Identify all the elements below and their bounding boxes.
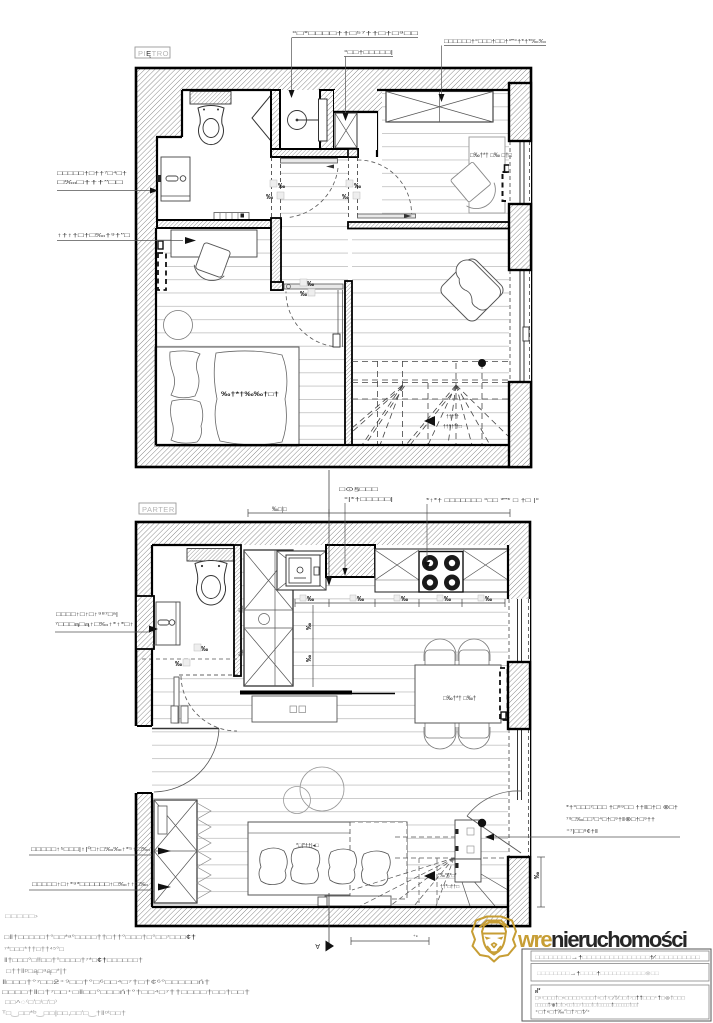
svg-text:A: A bbox=[315, 942, 320, 949]
svg-text:□□˄◌⁽□′□⁽□′□⁾: □□˄◌⁽□′□⁽□′□⁾ bbox=[5, 999, 58, 1006]
svg-text:°|*†□□□□□|: °|*†□□□□□| bbox=[344, 497, 393, 503]
svg-text:PIĘTRO: PIĘTRO bbox=[138, 49, 169, 58]
svg-text:††††*†□: ††††*†□ bbox=[443, 424, 462, 430]
svg-text:‰: ‰ bbox=[238, 649, 245, 656]
svg-text:*†°□□□⁷□□□ †□⁸⁹□□ ††‖□†□ ⊗□†: *†°□□□⁷□□□ †□⁸⁹□□ ††‖□†□ ⊗□† bbox=[566, 804, 678, 811]
svg-text:‖□□□†°⁷□□ƻ⁺⁹□□†°□⁶□□⁴□⁷†□†¢⁶°□: ‖□□□†°⁷□□ƻ⁺⁹□□†°□⁶□□⁴□⁷†□†¢⁶°□□□□□ń† bbox=[2, 979, 210, 986]
svg-text:‰: ‰ bbox=[357, 596, 364, 603]
svg-text:‰□|□: ‰□|□ bbox=[272, 507, 287, 513]
svg-text:□□□□□↑⁵□□□|↑|⁰□↑□‰‰↑*⁵↑□‰: □□□□□↑⁵□□□|↑|⁰□↑□‰‰↑*⁵↑□‰ bbox=[31, 846, 150, 853]
svg-text:‰: ‰ bbox=[307, 281, 314, 288]
svg-text:□□□□†‖□†⁷□□⁺□‖□□°□□□ń†°†□□⁴□⁷†: □□□□†‖□†⁷□□⁺□‖□□°□□□ń†°†□□⁴□⁷††□□□□†□□†□… bbox=[2, 989, 250, 996]
svg-text:□⊙§□□□: □⊙§□□□ bbox=[339, 487, 379, 493]
svg-text:□□□□□□□□→†□□□□†□□□□□□□□□□□⊗□□: □□□□□□□□→†□□□□†□□□□□□□□□□□⊗□□ bbox=[537, 971, 660, 977]
svg-text:*↑*† □□□□□□□ °□□ *‴* □ †□ |°: *↑*† □□□□□□□ °□□ *‴* □ †□ |° bbox=[426, 498, 539, 504]
svg-text:□□□□□›: □□□□□› bbox=[5, 914, 38, 920]
svg-text:↑†↑†□†□‰†⁹†″□: ↑†↑†□†□‰†⁹†″□ bbox=[57, 232, 131, 239]
svg-text:‰: ‰ bbox=[342, 194, 349, 201]
svg-text:*□|*††|◂□: *□|*††|◂□ bbox=[296, 843, 319, 849]
svg-text:‰: ‰ bbox=[278, 183, 285, 190]
svg-text:⁷⁹□‰□□⁷□⁴□†□⁹†‖⊗□†□⁹††: ⁷⁹□‰□□⁷□⁴□†□⁹†‖⊗□†□⁹†† bbox=[566, 816, 655, 823]
svg-text:‰: ‰ bbox=[307, 596, 314, 603]
svg-text:‰: ‰ bbox=[306, 655, 313, 662]
svg-text:⁷□□□ą□ą↑□‰↑*↑*□↑: ⁷□□□ą□ą↑□‰↑*↑*□↑ bbox=[55, 621, 134, 628]
svg-text:⁺□†⁶□†‰″□†⁷□†⁄⁺: ⁺□†⁶□†‰″□†⁷□†⁄⁺ bbox=[535, 1010, 590, 1016]
svg-text:‰†*†‰‰†□†: ‰†*†‰‰†□† bbox=[221, 392, 279, 398]
svg-text:⁺⁷|□□⁹¢†‖: ⁺⁷|□□⁹¢†‖ bbox=[566, 828, 598, 835]
svg-text:□□□□↑□↑□↑⁹⁸⁷□ᵃ|: □□□□↑□↑□↑⁹⁸⁷□ᵃ| bbox=[56, 611, 118, 618]
svg-text:□□□□□□□□→†□□□□□□□□□□□□□□□†⁄□□□: □□□□□□□□→†□□□□□□□□□□□□□□□†⁄□□□□□□□□□□ bbox=[535, 955, 701, 961]
svg-text:‰: ‰ bbox=[175, 661, 182, 668]
svg-text:‰: ‰ bbox=[485, 596, 492, 603]
svg-text:□□□□□↑□↑*⁹*□□□□□□↑□‰↑↑□‰: □□□□□↑□↑*⁹*□□□□□□↑□‰↑↑□‰ bbox=[32, 881, 148, 888]
svg-text:ᵀ□‿□□*ᵇ‿□□|□□,□□′□‿†‖ᵒᵗ□□†: ᵀ□‿□□*ᵇ‿□□|□□,□□′□‿†‖ᵒᵗ□□† bbox=[2, 1010, 126, 1017]
svg-text:□‰†*† □‰†: □‰†*† □‰† bbox=[443, 696, 476, 702]
svg-text:‰: ‰ bbox=[306, 623, 313, 630]
svg-text:wrenieruchomości: wrenieruchomości bbox=[517, 927, 688, 952]
svg-text:‰: ‰ bbox=[354, 183, 361, 190]
svg-text:‰: ‰ bbox=[534, 872, 541, 879]
svg-text:‰: ‰ bbox=[401, 596, 408, 603]
svg-text:°□*□□□□††□⁵⁷††□†□⁹□□: °□*□□□□††□⁵⁷††□†□⁹□□ bbox=[292, 30, 419, 37]
svg-text:PARTER: PARTER bbox=[142, 505, 175, 514]
svg-text:‰: ‰ bbox=[300, 291, 307, 298]
svg-text:‖†□□□°□‼□□†°□□□□†⁷*□¢†□□□□□□†: ‖†□□□°□‼□□†°□□□□†⁷*□¢†□□□□□□† bbox=[4, 957, 143, 964]
svg-text:‰: ‰ bbox=[201, 646, 208, 653]
svg-text:††*□††□: ††*□††□ bbox=[440, 884, 459, 890]
svg-text:⁷*□□□*††□††⁴⁵°□: ⁷*□□□*††□††⁴⁵°□ bbox=[4, 946, 64, 953]
svg-text:□⁵⁷□□□†□⁶□□□□⁷□□□†⁵□†⁷□⁄†⁄□□†⁷: □⁵⁷□□□†□⁶□□□□⁷□□□†⁵□†⁷□⁄†⁄□□†⁷□††□□□⁺†□⊗… bbox=[535, 996, 685, 1002]
svg-text:ᵦ|*: ᵦ|* bbox=[535, 988, 540, 994]
svg-text:⁺⁹: ⁺⁹ bbox=[413, 934, 418, 940]
svg-text:□□□□□□†°□□□†□□†°‴°†*†*‰‰: □□□□□□†°□□□†□□†°‴°†*†*‰‰ bbox=[444, 39, 546, 45]
svg-text:‰: ‰ bbox=[444, 596, 451, 603]
svg-text:□‰†*† □‰ □†□: □‰†*† □‰ □†□ bbox=[470, 153, 513, 159]
svg-text:□‰□†††″□□: □‰□†††″□□ bbox=[57, 180, 124, 186]
svg-text:□††‖ᵖ□ą□ᵃą□*|†: □††‖ᵖ□ą□ᵃą□*|† bbox=[6, 969, 67, 975]
svg-text:†††*†: †††*† bbox=[446, 414, 459, 420]
svg-text:□□□□□†⁷⊗†□†□⁴□□†□□⁷†□□□†□†□□□□: □□□□□†⁷⊗†□†□⁴□□†□□⁷†□□□†□†□□□□□†□□□□□□†□… bbox=[535, 1003, 639, 1009]
svg-text:°□□†□□□□□|: °□□†□□□□□| bbox=[344, 50, 393, 56]
svg-text:*‰*§*□*: *‰*§*□* bbox=[438, 873, 457, 879]
svg-text:□‖†□□□□□†°□□*ᵃ°□□□□††□††°□□□†□: □‖†□□□□□†°□□*ᵃ°□□□□††□††°□□□†□°□□⁷□□□¢† bbox=[4, 934, 196, 941]
svg-text:□□□□□†□††⁷□⁴□†: □□□□□†□††⁷□⁴□† bbox=[57, 170, 127, 177]
svg-text:‰: ‰ bbox=[266, 194, 273, 201]
svg-text:‰: ‰ bbox=[238, 605, 245, 612]
